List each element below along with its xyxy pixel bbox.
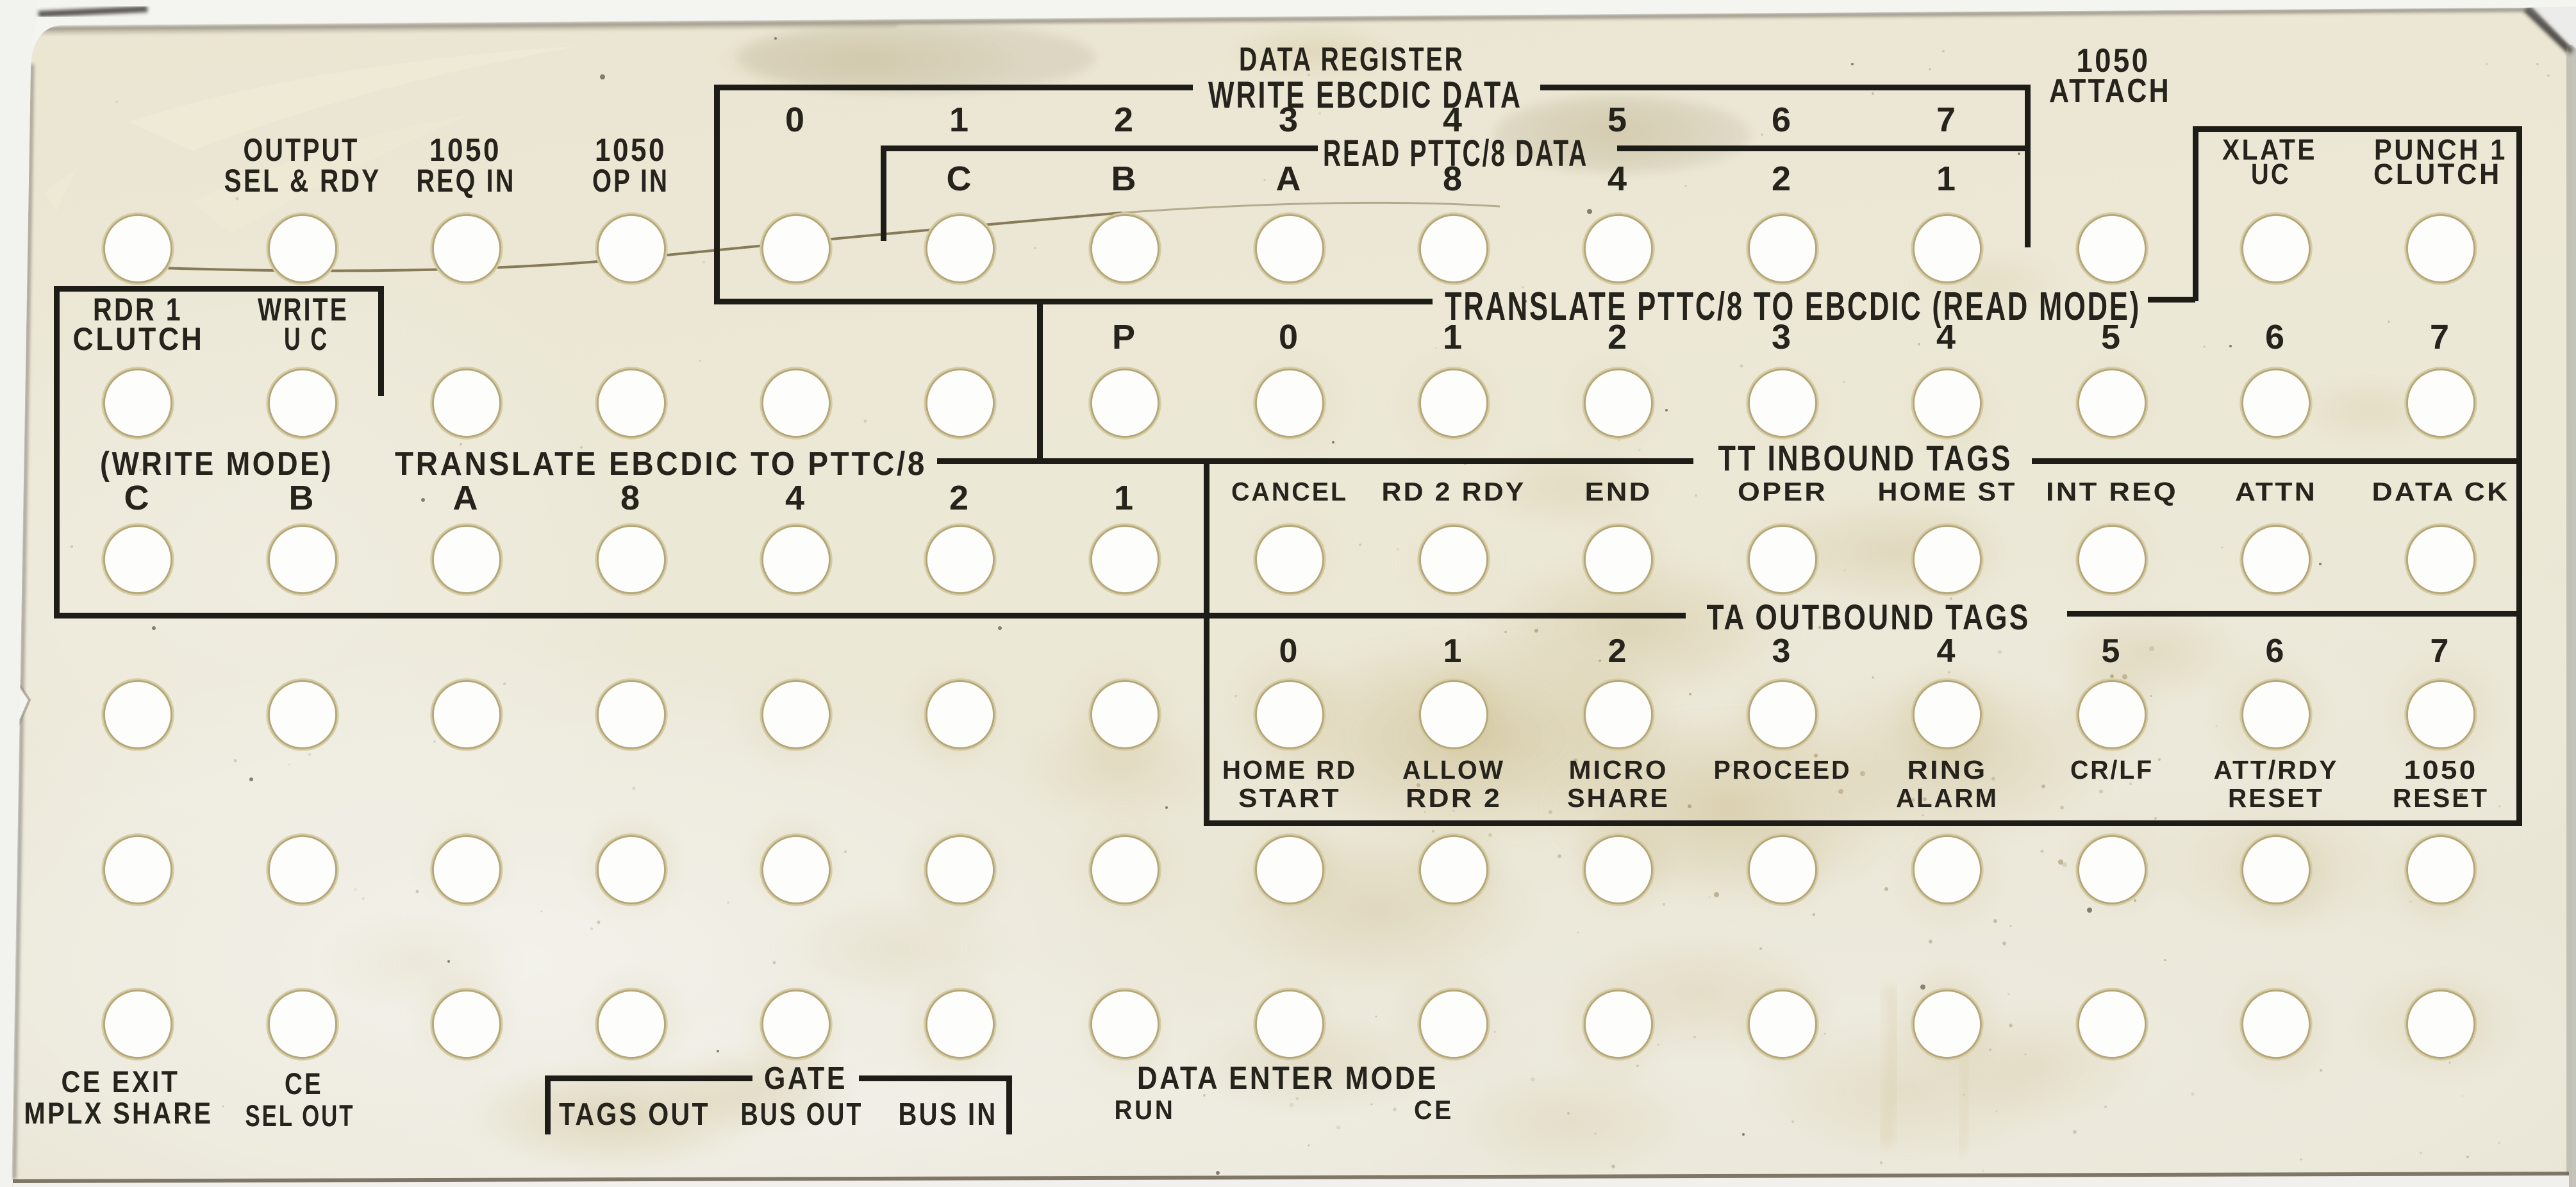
svg-text:5: 5 [1608, 101, 1629, 139]
svg-text:PROCEED: PROCEED [1714, 755, 1852, 784]
svg-text:ALARM: ALARM [1896, 783, 1998, 813]
svg-text:CE: CE [285, 1067, 323, 1100]
svg-text:DATA CK: DATA CK [2372, 477, 2510, 506]
svg-text:OPER: OPER [1738, 477, 1827, 506]
svg-text:6: 6 [2265, 318, 2287, 356]
svg-text:1: 1 [1443, 633, 1465, 670]
svg-text:REQ IN: REQ IN [417, 163, 516, 199]
svg-text:CR/LF: CR/LF [2070, 755, 2154, 784]
svg-text:INT REQ: INT REQ [2046, 477, 2178, 506]
svg-text:7: 7 [2431, 633, 2452, 670]
svg-text:3: 3 [1772, 318, 1793, 356]
svg-text:HOME RD: HOME RD [1222, 755, 1357, 784]
svg-text:0: 0 [1279, 318, 1300, 356]
svg-text:SHARE: SHARE [1567, 783, 1670, 813]
svg-text:RDR 2: RDR 2 [1406, 783, 1502, 813]
svg-text:RD 2 RDY: RD 2 RDY [1382, 477, 1526, 506]
svg-text:1: 1 [1443, 318, 1465, 356]
svg-text:A: A [1276, 160, 1304, 198]
svg-text:CANCEL: CANCEL [1231, 477, 1348, 506]
svg-text:2: 2 [1608, 318, 1629, 356]
svg-text:3: 3 [1279, 101, 1300, 139]
svg-text:OP IN: OP IN [592, 163, 669, 199]
svg-text:2: 2 [1772, 160, 1793, 198]
svg-text:ATT/RDY: ATT/RDY [2214, 755, 2339, 784]
svg-text:7: 7 [2430, 318, 2452, 356]
svg-text:WRITE EBCDIC DATA: WRITE EBCDIC DATA [1208, 74, 1522, 116]
svg-text:4: 4 [1937, 633, 1958, 670]
svg-text:5: 5 [2101, 318, 2123, 356]
svg-text:4: 4 [1608, 160, 1629, 198]
svg-text:SEL OUT: SEL OUT [245, 1099, 355, 1133]
svg-text:BUS OUT: BUS OUT [741, 1097, 863, 1132]
svg-text:SEL & RDY: SEL & RDY [224, 163, 381, 199]
svg-text:RESET: RESET [2228, 783, 2324, 813]
svg-text:2: 2 [1608, 633, 1629, 670]
svg-text:ATTACH: ATTACH [2049, 72, 2171, 110]
svg-text:HOME ST: HOME ST [1878, 477, 2017, 506]
svg-text:UC: UC [2251, 158, 2291, 190]
svg-text:6: 6 [1772, 101, 1793, 139]
svg-text:4: 4 [1443, 101, 1465, 139]
svg-text:END: END [1585, 477, 1652, 506]
svg-text:ATTN: ATTN [2235, 477, 2317, 506]
svg-text:1050: 1050 [2404, 755, 2478, 784]
svg-text:CE: CE [1414, 1095, 1454, 1125]
svg-text:P: P [1112, 318, 1138, 356]
svg-text:C: C [124, 479, 152, 517]
svg-text:B: B [1111, 160, 1139, 198]
svg-text:6: 6 [2266, 633, 2287, 670]
svg-text:0: 0 [1279, 633, 1300, 670]
svg-text:RESET: RESET [2393, 783, 2489, 813]
svg-text:1: 1 [1114, 479, 1136, 517]
svg-text:2: 2 [949, 479, 971, 517]
svg-text:TT INBOUND TAGS: TT INBOUND TAGS [1718, 438, 2013, 478]
svg-text:MPLX SHARE: MPLX SHARE [24, 1096, 213, 1130]
svg-text:B: B [289, 479, 317, 517]
svg-text:BUS IN: BUS IN [899, 1097, 998, 1132]
svg-text:MICRO: MICRO [1569, 755, 1668, 784]
svg-text:4: 4 [785, 479, 807, 517]
svg-text:2: 2 [1114, 101, 1136, 139]
svg-text:RING: RING [1907, 755, 1988, 784]
svg-text:GATE: GATE [764, 1061, 847, 1096]
svg-text:DATA REGISTER: DATA REGISTER [1239, 41, 1465, 78]
svg-text:3: 3 [1772, 633, 1793, 670]
svg-text:RUN: RUN [1115, 1095, 1176, 1125]
svg-text:TA OUTBOUND TAGS: TA OUTBOUND TAGS [1707, 597, 2031, 637]
svg-text:8: 8 [1443, 160, 1465, 198]
svg-text:U C: U C [284, 321, 329, 357]
svg-text:DATA ENTER MODE: DATA ENTER MODE [1137, 1060, 1438, 1096]
svg-text:1: 1 [949, 101, 971, 139]
svg-text:8: 8 [620, 479, 642, 517]
svg-text:START: START [1238, 783, 1341, 813]
svg-text:TAGS OUT: TAGS OUT [559, 1097, 710, 1132]
svg-text:CLUTCH: CLUTCH [73, 321, 204, 357]
svg-text:ALLOW: ALLOW [1402, 755, 1505, 784]
svg-text:4: 4 [1936, 318, 1958, 356]
svg-text:(WRITE MODE): (WRITE MODE) [100, 445, 333, 483]
svg-text:CE EXIT: CE EXIT [62, 1065, 180, 1099]
svg-text:0: 0 [785, 101, 807, 139]
svg-text:5: 5 [2102, 633, 2123, 670]
svg-text:1: 1 [1936, 160, 1958, 198]
svg-text:CLUTCH: CLUTCH [2373, 158, 2502, 190]
svg-text:7: 7 [1936, 101, 1958, 139]
svg-text:C: C [947, 160, 974, 198]
svg-text:TRANSLATE EBCDIC TO PTTC/8: TRANSLATE EBCDIC TO PTTC/8 [395, 445, 927, 483]
svg-text:A: A [453, 479, 481, 517]
